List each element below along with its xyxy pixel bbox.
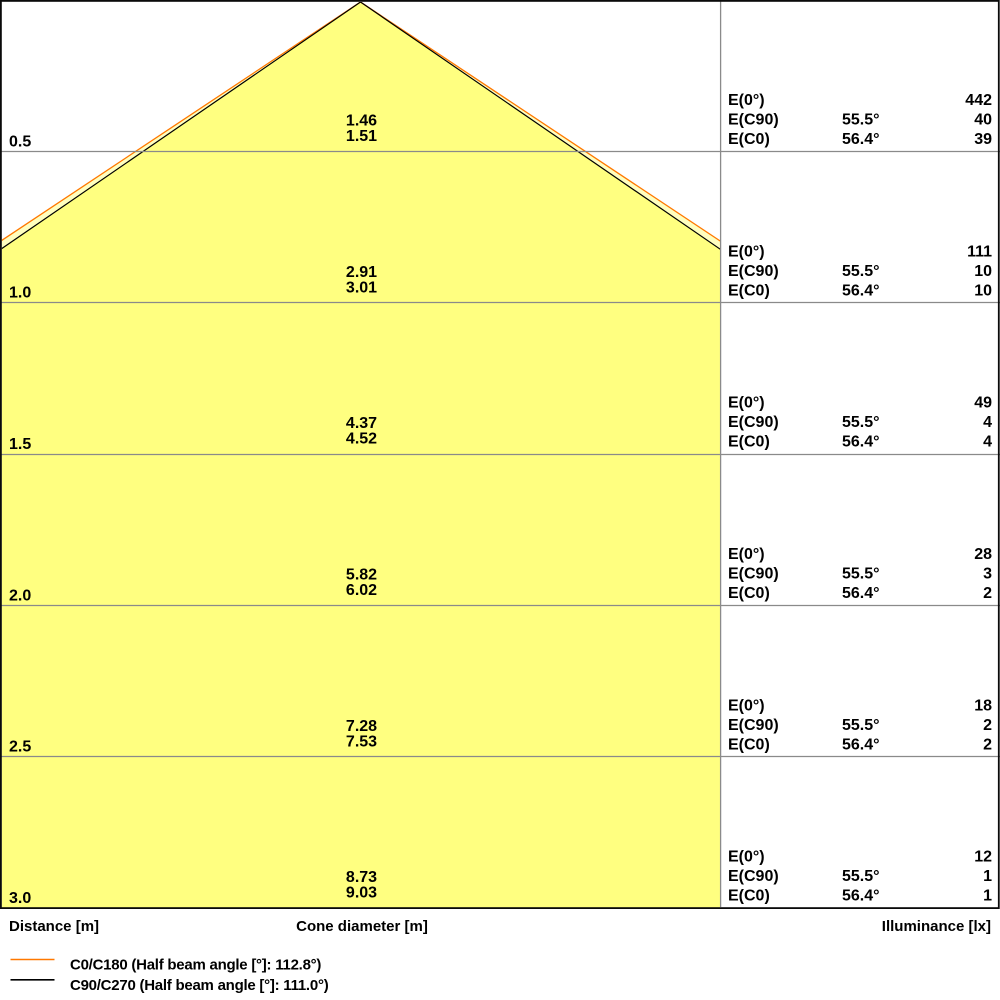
svg-text:55.5°: 55.5°: [842, 263, 880, 280]
svg-text:2.5: 2.5: [9, 739, 31, 756]
svg-text:2.91: 2.91: [346, 264, 377, 281]
svg-text:E(C0): E(C0): [728, 282, 770, 299]
svg-text:12: 12: [974, 849, 992, 866]
svg-text:E(0°): E(0°): [728, 697, 765, 714]
svg-text:4: 4: [983, 434, 992, 451]
svg-text:10: 10: [974, 282, 992, 299]
svg-text:56.4°: 56.4°: [842, 282, 880, 299]
svg-text:E(C90): E(C90): [728, 414, 779, 431]
svg-text:5.82: 5.82: [346, 567, 377, 584]
svg-text:E(C0): E(C0): [728, 585, 770, 602]
svg-text:49: 49: [974, 395, 992, 412]
svg-text:39: 39: [974, 131, 992, 148]
svg-text:4.52: 4.52: [346, 431, 377, 448]
svg-text:111: 111: [967, 243, 992, 260]
svg-text:55.5°: 55.5°: [842, 717, 880, 734]
svg-text:55.5°: 55.5°: [842, 868, 880, 885]
svg-text:7.53: 7.53: [346, 733, 377, 750]
svg-text:4: 4: [983, 414, 992, 431]
svg-text:1.5: 1.5: [9, 436, 31, 453]
svg-text:2: 2: [983, 736, 992, 753]
svg-text:55.5°: 55.5°: [842, 565, 880, 582]
svg-text:442: 442: [965, 92, 992, 109]
svg-text:C0/C180 (Half beam angle [°]:: C0/C180 (Half beam angle [°]: 112.8°): [70, 957, 321, 974]
svg-text:E(C90): E(C90): [728, 868, 779, 885]
svg-text:1.46: 1.46: [346, 113, 377, 130]
svg-text:E(C0): E(C0): [728, 131, 770, 148]
svg-text:C90/C270 (Half beam angle [°]:: C90/C270 (Half beam angle [°]: 111.0°): [70, 977, 329, 994]
svg-text:1: 1: [983, 888, 992, 905]
svg-text:E(C0): E(C0): [728, 434, 770, 451]
svg-text:0.5: 0.5: [9, 133, 31, 150]
svg-text:40: 40: [974, 111, 992, 128]
svg-text:4.37: 4.37: [346, 415, 377, 432]
svg-text:55.5°: 55.5°: [842, 414, 880, 431]
svg-text:E(C0): E(C0): [728, 736, 770, 753]
svg-text:E(C0): E(C0): [728, 888, 770, 905]
svg-text:18: 18: [974, 697, 992, 714]
svg-text:E(C90): E(C90): [728, 565, 779, 582]
svg-text:E(0°): E(0°): [728, 849, 765, 866]
svg-text:Cone diameter [m]: Cone diameter [m]: [296, 918, 428, 935]
svg-text:56.4°: 56.4°: [842, 434, 880, 451]
svg-text:8.73: 8.73: [346, 869, 377, 886]
svg-text:E(C90): E(C90): [728, 717, 779, 734]
svg-text:E(C90): E(C90): [728, 111, 779, 128]
svg-text:55.5°: 55.5°: [842, 111, 880, 128]
svg-text:3.01: 3.01: [346, 279, 377, 296]
svg-text:28: 28: [974, 546, 992, 563]
svg-text:56.4°: 56.4°: [842, 736, 880, 753]
svg-text:E(C90): E(C90): [728, 263, 779, 280]
svg-text:3: 3: [983, 565, 992, 582]
svg-text:9.03: 9.03: [346, 885, 377, 902]
svg-text:56.4°: 56.4°: [842, 131, 880, 148]
svg-text:E(0°): E(0°): [728, 243, 765, 260]
svg-text:56.4°: 56.4°: [842, 888, 880, 905]
svg-text:7.28: 7.28: [346, 718, 377, 735]
svg-text:Distance [m]: Distance [m]: [9, 918, 99, 935]
svg-text:2.0: 2.0: [9, 587, 31, 604]
svg-text:10: 10: [974, 263, 992, 280]
svg-text:Illuminance [lx]: Illuminance [lx]: [882, 918, 991, 935]
svg-text:2: 2: [983, 717, 992, 734]
svg-text:1.0: 1.0: [9, 285, 31, 302]
svg-text:56.4°: 56.4°: [842, 585, 880, 602]
svg-text:E(0°): E(0°): [728, 395, 765, 412]
svg-text:6.02: 6.02: [346, 582, 377, 599]
svg-text:2: 2: [983, 585, 992, 602]
svg-text:E(0°): E(0°): [728, 92, 765, 109]
svg-text:1.51: 1.51: [346, 128, 377, 145]
svg-text:1: 1: [983, 868, 992, 885]
svg-text:3.0: 3.0: [9, 890, 31, 907]
svg-text:E(0°): E(0°): [728, 546, 765, 563]
